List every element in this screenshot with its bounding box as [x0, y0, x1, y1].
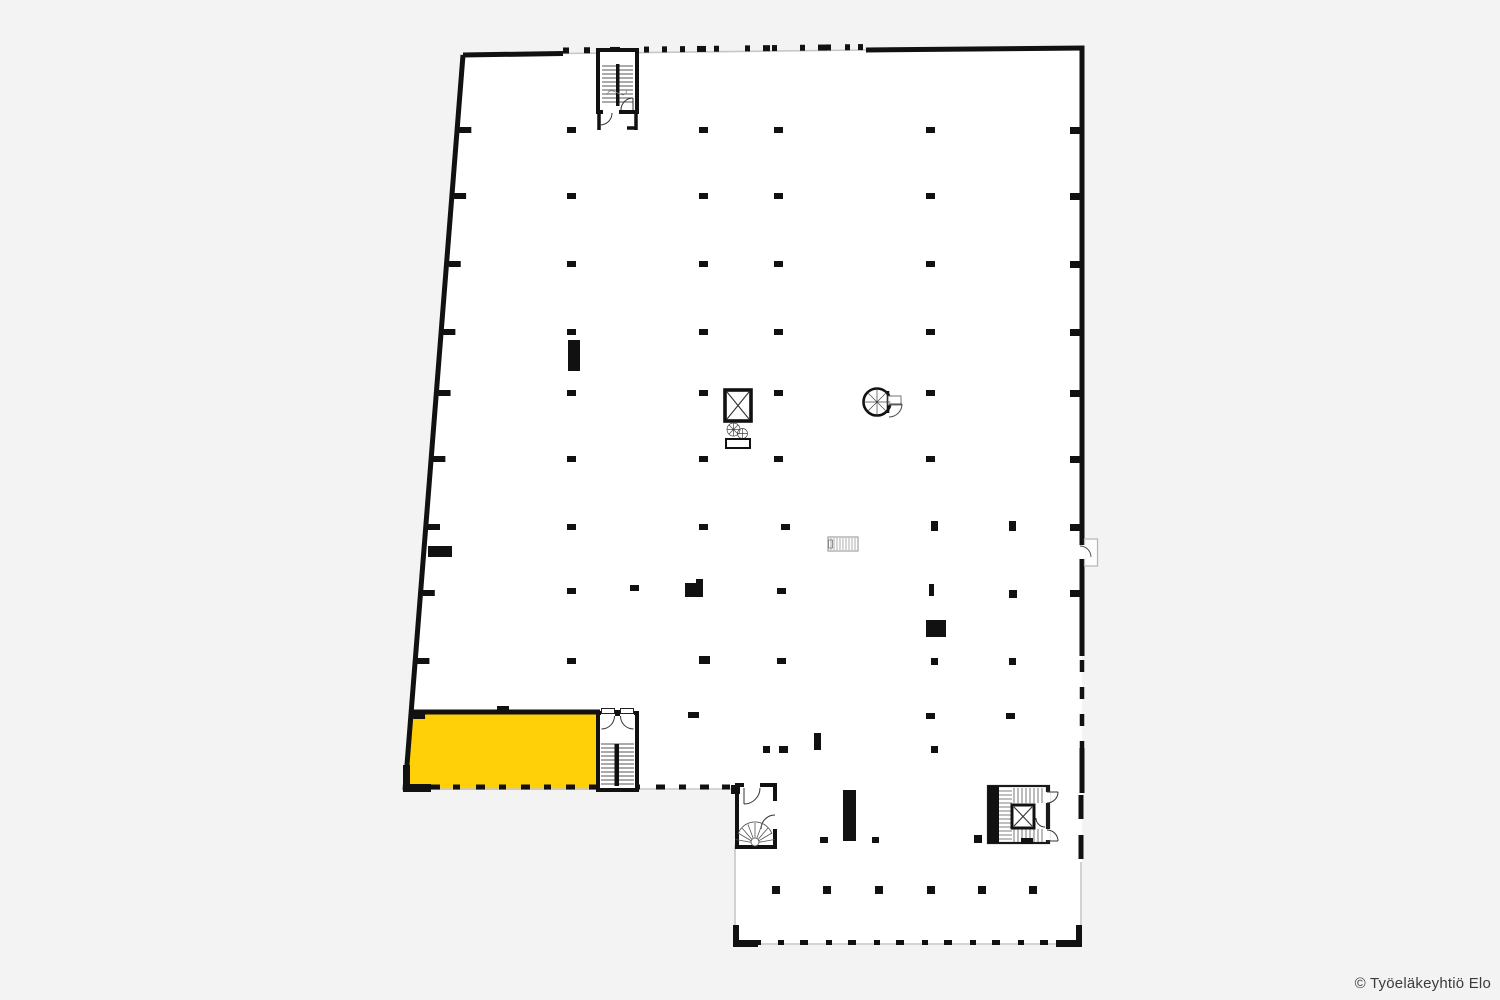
spiral-spokes [864, 389, 891, 416]
column [1006, 713, 1015, 719]
wall-dash [1040, 940, 1048, 945]
mullion [800, 45, 805, 51]
mullion [563, 47, 569, 53]
mullion [680, 46, 685, 52]
column [926, 390, 935, 396]
door-leaf [602, 709, 615, 714]
column [699, 127, 708, 133]
wall-tick [428, 524, 440, 530]
column [699, 524, 708, 530]
column [927, 886, 935, 894]
mullion [584, 47, 590, 53]
column [926, 261, 935, 267]
column [567, 658, 576, 664]
wall-dash [722, 785, 730, 790]
mullion [763, 45, 770, 51]
column [567, 193, 576, 199]
mullion [697, 46, 706, 52]
stair-stringer [615, 744, 620, 786]
column [820, 837, 828, 843]
column [763, 746, 770, 753]
column [567, 588, 576, 594]
wall-dash [874, 940, 880, 945]
door-leaf [621, 709, 634, 714]
floor-hatch [828, 537, 858, 551]
wall-tick [443, 329, 455, 335]
wall-tick [1070, 127, 1082, 134]
column [774, 127, 783, 133]
wall-dash [922, 940, 928, 945]
column [823, 886, 831, 894]
mullion [858, 44, 863, 50]
wall-tick [413, 713, 425, 719]
wall-tick [439, 390, 451, 396]
wall-dash [1018, 940, 1024, 945]
column [567, 524, 576, 530]
column [926, 127, 935, 133]
column [699, 329, 708, 335]
wall-top-left [463, 54, 563, 56]
column [777, 658, 786, 664]
mullion [826, 44, 831, 50]
column [779, 746, 788, 753]
mullion [644, 47, 649, 53]
wall-tick [1070, 524, 1082, 531]
wall-tick [1070, 329, 1082, 336]
wall-tick [417, 658, 429, 664]
column [1009, 658, 1016, 665]
column [772, 886, 780, 894]
wall-tick [423, 590, 435, 596]
floor-plan [0, 0, 1500, 1000]
wall-tick [449, 261, 461, 267]
wall-dash [800, 940, 808, 945]
wall-tick [433, 456, 445, 462]
wall-dash [453, 785, 460, 790]
column [978, 886, 986, 894]
column [774, 456, 783, 462]
wall-dash [431, 785, 440, 790]
column [926, 193, 935, 199]
column [774, 261, 783, 267]
building-footprint [405, 48, 1082, 945]
highlighted-area [405, 712, 598, 790]
wall-dash [679, 785, 686, 790]
column [774, 390, 783, 396]
mullion [818, 45, 827, 51]
column [567, 329, 576, 335]
stair-stringer [616, 64, 620, 106]
mullion [845, 44, 850, 50]
wall-dash [778, 940, 784, 945]
column [699, 261, 708, 267]
column [974, 835, 982, 843]
wall-dash [970, 940, 976, 945]
column [1009, 521, 1016, 531]
wall-tick [454, 193, 466, 199]
column [926, 329, 935, 335]
column [1029, 886, 1037, 894]
wall-tick [1070, 390, 1082, 397]
column [699, 193, 708, 199]
column [699, 456, 708, 462]
wall-dash [700, 785, 709, 790]
wall-dash [896, 940, 904, 945]
mullion [745, 45, 750, 51]
column [688, 712, 699, 718]
wall-dash [826, 940, 832, 945]
column [777, 588, 786, 594]
column [630, 585, 639, 591]
column [931, 746, 938, 753]
mullion [772, 45, 777, 51]
wall-tick [459, 127, 471, 133]
column [875, 886, 883, 894]
wall-dash [544, 785, 551, 790]
wall-dash [566, 785, 575, 790]
wall-tick [1070, 261, 1082, 268]
column [567, 127, 576, 133]
column [1009, 590, 1017, 598]
wall-dash [499, 785, 506, 790]
column [774, 193, 783, 199]
column [926, 713, 935, 719]
column [774, 329, 783, 335]
wall-top-right [866, 48, 1085, 50]
column [699, 390, 708, 396]
column [567, 456, 576, 462]
wall-tick [1070, 193, 1082, 200]
mullion [714, 46, 719, 52]
wall-tick [1070, 456, 1082, 463]
column [931, 521, 938, 531]
column [699, 656, 710, 664]
wall-dash [656, 785, 665, 790]
stairwell-south-east [988, 786, 1058, 844]
column [567, 390, 576, 396]
column [567, 261, 576, 267]
wall-dash [476, 785, 485, 790]
wall-dash [521, 785, 530, 790]
mullion [662, 46, 667, 52]
wall-tick [1070, 590, 1082, 597]
copyright-text: © Työeläkeyhtiö Elo [1355, 975, 1491, 992]
shaft-tray [726, 439, 750, 448]
wall-dash [848, 940, 856, 945]
stairwell-west [598, 709, 637, 791]
wall-dash [589, 785, 596, 790]
column [931, 658, 938, 665]
wall-dash [992, 940, 1000, 945]
elevator-central [725, 390, 751, 448]
column [926, 456, 935, 462]
column [781, 524, 790, 530]
wall-dash [944, 940, 952, 945]
column [872, 837, 879, 843]
